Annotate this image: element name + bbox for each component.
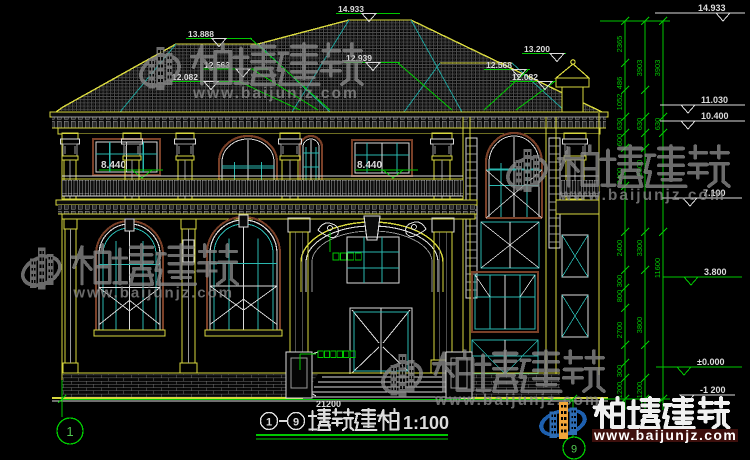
svg-text:www.baijunjz.com: www.baijunjz.com [72, 284, 234, 301]
svg-text:300: 300 [615, 365, 624, 378]
svg-text:800: 800 [615, 290, 624, 303]
svg-text:630: 630 [615, 118, 624, 131]
svg-text:3903: 3903 [653, 60, 662, 77]
svg-text:12.568: 12.568 [486, 60, 512, 70]
svg-text:2400: 2400 [615, 240, 624, 257]
svg-text:1:100: 1:100 [403, 413, 449, 433]
svg-text:1052: 1052 [615, 94, 624, 111]
svg-text:www.baijunjz.com: www.baijunjz.com [593, 427, 737, 443]
svg-text:300: 300 [615, 275, 624, 288]
svg-text:21200: 21200 [316, 399, 341, 409]
svg-text:-1 200: -1 200 [700, 385, 726, 395]
svg-text:486: 486 [615, 77, 624, 90]
svg-text:1200: 1200 [635, 382, 644, 399]
svg-text:www.baijunjz.com: www.baijunjz.com [559, 187, 726, 204]
svg-text:9: 9 [571, 444, 577, 456]
svg-text:11600: 11600 [653, 258, 662, 278]
svg-text:600: 600 [615, 134, 624, 147]
svg-text:www.baijunjz.com: www.baijunjz.com [434, 392, 601, 409]
svg-text:2700: 2700 [615, 322, 624, 339]
svg-text:10.400: 10.400 [701, 111, 729, 121]
svg-text:2365: 2365 [615, 36, 624, 53]
svg-text:13.200: 13.200 [524, 44, 550, 54]
svg-text:3.800: 3.800 [704, 267, 727, 277]
svg-text:13.888: 13.888 [188, 29, 214, 39]
svg-text:12.082: 12.082 [512, 72, 538, 82]
svg-text:8.440: 8.440 [101, 160, 126, 171]
svg-text:3800: 3800 [635, 317, 644, 334]
svg-text:630: 630 [653, 118, 662, 131]
svg-text:8.440: 8.440 [357, 160, 382, 171]
svg-text:±0.000: ±0.000 [697, 357, 724, 367]
svg-text:9: 9 [293, 417, 299, 429]
svg-text:1: 1 [66, 424, 73, 439]
svg-text:3300: 3300 [635, 240, 644, 257]
svg-text:11.030: 11.030 [701, 95, 728, 105]
svg-text:www.baijunjz.com: www.baijunjz.com [192, 85, 359, 102]
svg-text:1200: 1200 [615, 382, 624, 399]
svg-text:14.933: 14.933 [698, 3, 726, 13]
svg-text:14.933: 14.933 [338, 4, 364, 14]
svg-text:1: 1 [266, 417, 272, 429]
svg-text:630: 630 [635, 118, 644, 131]
svg-text:3903: 3903 [635, 60, 644, 77]
